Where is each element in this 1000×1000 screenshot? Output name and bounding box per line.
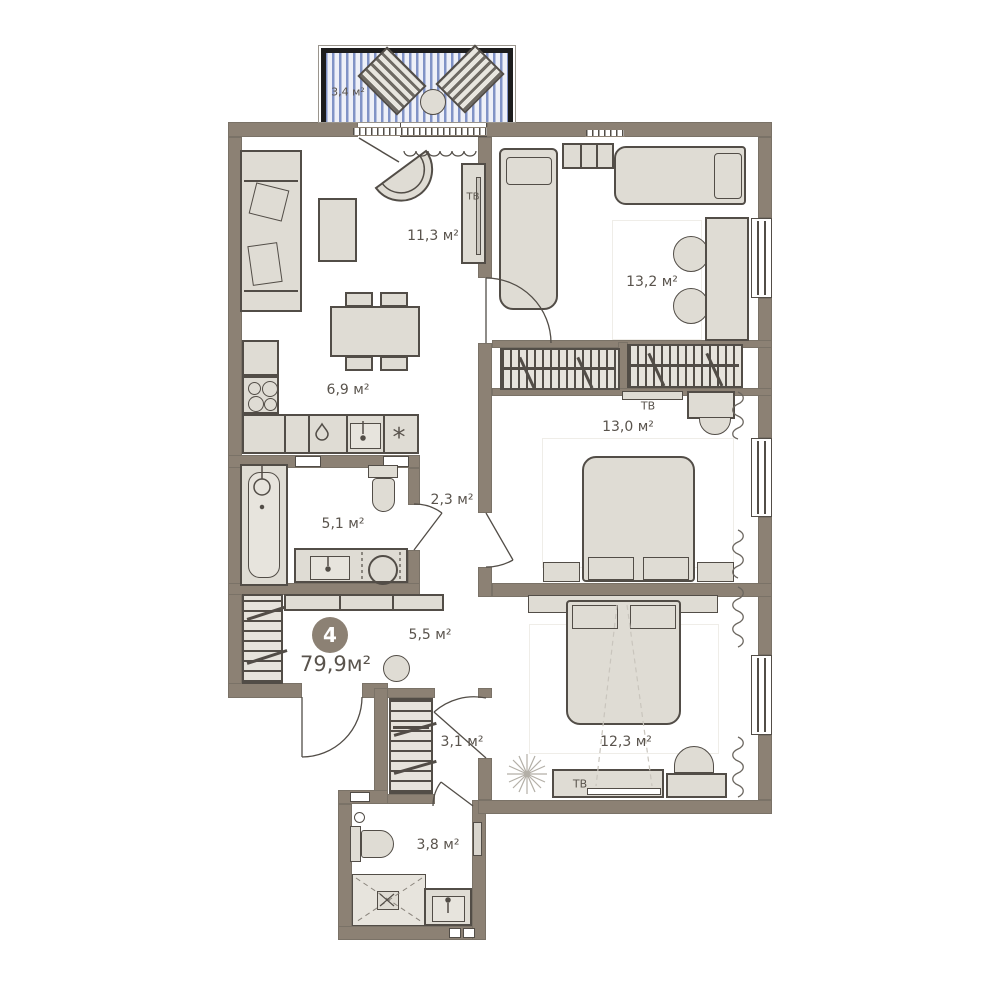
coffee-table — [318, 198, 357, 262]
bathtub — [240, 464, 288, 586]
toilet-bowl — [372, 478, 395, 512]
wardrobe-hatch-diagonal — [706, 353, 723, 387]
room-label-hall: 5,5 м² — [409, 627, 452, 643]
bath-counter — [294, 548, 408, 583]
room-label-hallway: 2,3 м² — [431, 492, 474, 508]
bedroom-middle-door — [486, 513, 513, 567]
room-label-kitchen: 6,9 м² — [327, 382, 370, 398]
window-sill-strip — [352, 127, 488, 136]
wall-niche — [350, 792, 370, 802]
bath-sink — [310, 556, 350, 580]
wall-segment — [758, 298, 772, 438]
window-frame-line — [764, 221, 766, 295]
double-bed — [582, 456, 695, 582]
room-label-bedroom-bottom: 12,3 м² — [600, 734, 652, 750]
bed-pillow — [572, 605, 618, 629]
stove-burner — [248, 396, 264, 412]
tv-stand-living: ТВ — [461, 163, 486, 264]
wall-segment — [478, 343, 492, 513]
wall-vent — [449, 928, 461, 938]
wall-vent — [463, 928, 475, 938]
wardrobe-hatch-diagonal — [577, 357, 594, 389]
wall-segment — [758, 735, 772, 800]
desk — [705, 217, 749, 341]
bathroom-small-door — [433, 782, 473, 806]
kitchen-sink — [350, 423, 381, 449]
dining-chair — [380, 292, 408, 307]
hall-wardrobe — [242, 594, 283, 684]
wardrobe-clothes — [627, 344, 743, 388]
room-label-bedroom-top: 13,2 м² — [626, 274, 678, 290]
toilet-tank — [368, 465, 398, 478]
wardrobe-hatch-diagonal — [247, 649, 288, 664]
balcony-table — [420, 89, 446, 115]
faucet — [354, 812, 365, 823]
desk-chair — [673, 236, 709, 272]
dining-chair — [345, 356, 373, 371]
wardrobe-clothes — [500, 348, 620, 390]
sofa-cushion-line — [244, 290, 298, 292]
window — [751, 218, 772, 298]
stove — [242, 376, 279, 414]
wall-segment — [374, 688, 388, 802]
room-label-bathroom-main: 5,1 м² — [322, 516, 365, 532]
fridge — [242, 340, 279, 376]
shower-drain — [377, 891, 399, 910]
washing-machine — [368, 555, 398, 585]
balcony-railing — [321, 48, 326, 122]
counter-divider — [346, 416, 348, 452]
stove-burner — [262, 381, 278, 397]
tv-label-bedroom-bottom: ТВ — [573, 778, 587, 791]
window-frame-line — [757, 658, 759, 732]
window-frame-line — [757, 441, 759, 514]
wardrobe-hatch-diagonal — [247, 605, 288, 620]
sofa-cushion-line — [244, 180, 298, 182]
wardrobe-hatch-diagonal — [394, 722, 437, 737]
room-label-balcony: 3,4 м² — [331, 86, 365, 99]
room-label-bedroom-middle: 13,0 м² — [602, 419, 654, 435]
wardrobe-hatch-diagonal — [519, 357, 536, 389]
radiator-scallops — [404, 151, 476, 156]
plant — [507, 754, 547, 794]
dining-chair — [345, 292, 373, 307]
tv-console: ТВ — [552, 769, 664, 798]
wall-niche — [295, 456, 321, 467]
cabinet — [666, 773, 727, 798]
bed-pillow — [714, 153, 742, 199]
vanity-counter — [424, 888, 472, 926]
wall-segment — [338, 804, 352, 940]
double-bed — [566, 600, 681, 725]
balcony-railing — [321, 48, 513, 53]
stool — [383, 655, 410, 682]
window-frame-line — [764, 658, 766, 732]
tv-label-living: ТВ — [467, 192, 480, 203]
shower-tray — [352, 874, 426, 926]
balcony-railing — [508, 48, 513, 122]
single-bed — [614, 146, 746, 205]
tv-label-bedroom-middle: ТВ — [641, 400, 655, 413]
wall-segment — [478, 567, 492, 597]
dining-table — [330, 306, 420, 357]
fan-armchair — [376, 151, 432, 201]
nightstand — [697, 562, 734, 582]
wardrobe-hatch-diagonal — [648, 353, 665, 387]
tv-screen-bar — [587, 788, 661, 795]
wardrobe-rail — [631, 364, 739, 367]
shelf-unit — [562, 143, 614, 169]
window-sill-strip — [585, 129, 625, 137]
nightstand — [543, 562, 580, 582]
wall-niche — [473, 822, 482, 856]
wardrobe-cap — [387, 688, 435, 698]
dining-chair — [380, 356, 408, 371]
entry-door — [302, 697, 362, 757]
shelf-divider — [580, 145, 582, 167]
counter-divider — [383, 416, 385, 452]
room-label-corridor: 3,1 м² — [441, 734, 484, 750]
bathroom-main-door — [414, 504, 442, 550]
wall-segment — [408, 468, 420, 505]
cabinet-divider — [392, 596, 394, 609]
desk-chair-half — [699, 417, 731, 435]
desk-chair — [673, 288, 709, 324]
vanity-sink — [432, 896, 465, 922]
cabinet-divider — [339, 596, 341, 609]
stove-burner — [264, 398, 277, 411]
shoe-cabinet — [284, 594, 444, 611]
stove-burner — [248, 382, 261, 395]
wall-segment — [758, 137, 772, 218]
room-label-living: 11,3 м² — [407, 228, 459, 244]
bathtub-basin — [248, 472, 280, 578]
window-frame-line — [764, 441, 766, 514]
single-bed — [499, 148, 558, 310]
room-label-bathroom-small: 3,8 м² — [417, 837, 460, 853]
wall-segment — [228, 122, 358, 137]
tv-screen — [476, 177, 481, 255]
desk — [687, 391, 735, 419]
counter-divider — [308, 416, 310, 452]
toilet-bowl — [361, 830, 394, 858]
wall-segment — [478, 758, 492, 800]
total-area-label: 79,9м² — [300, 652, 371, 676]
window-frame-line — [757, 221, 759, 295]
wall-segment — [228, 683, 302, 698]
unit-number: 4 — [323, 623, 337, 647]
wall-segment — [478, 688, 492, 698]
floor-plan: ТВ 4 79,9м² — [0, 0, 1000, 1000]
wardrobe-cap — [387, 794, 435, 804]
unit-number-badge: 4 — [312, 617, 348, 653]
shelf-divider — [596, 145, 598, 167]
bed-pillow — [588, 557, 634, 580]
sofa — [240, 150, 302, 312]
wardrobe-rail — [504, 367, 616, 370]
bed-pillow — [506, 157, 552, 185]
wall-segment — [478, 800, 772, 814]
toilet-tank — [350, 826, 361, 862]
window — [751, 438, 772, 517]
corridor-wardrobe — [389, 698, 433, 794]
sofa-pillow — [247, 242, 282, 286]
wall-segment — [472, 800, 486, 940]
window — [751, 655, 772, 735]
bed-pillow — [643, 557, 689, 580]
balcony-door — [359, 138, 399, 162]
wall-segment — [487, 122, 772, 137]
counter-divider — [284, 416, 286, 452]
wardrobe-hatch-diagonal — [394, 760, 437, 775]
kitchen-vent-symbol: * — [393, 423, 406, 453]
sofa-pillow — [249, 182, 290, 221]
bed-pillow — [630, 605, 676, 629]
